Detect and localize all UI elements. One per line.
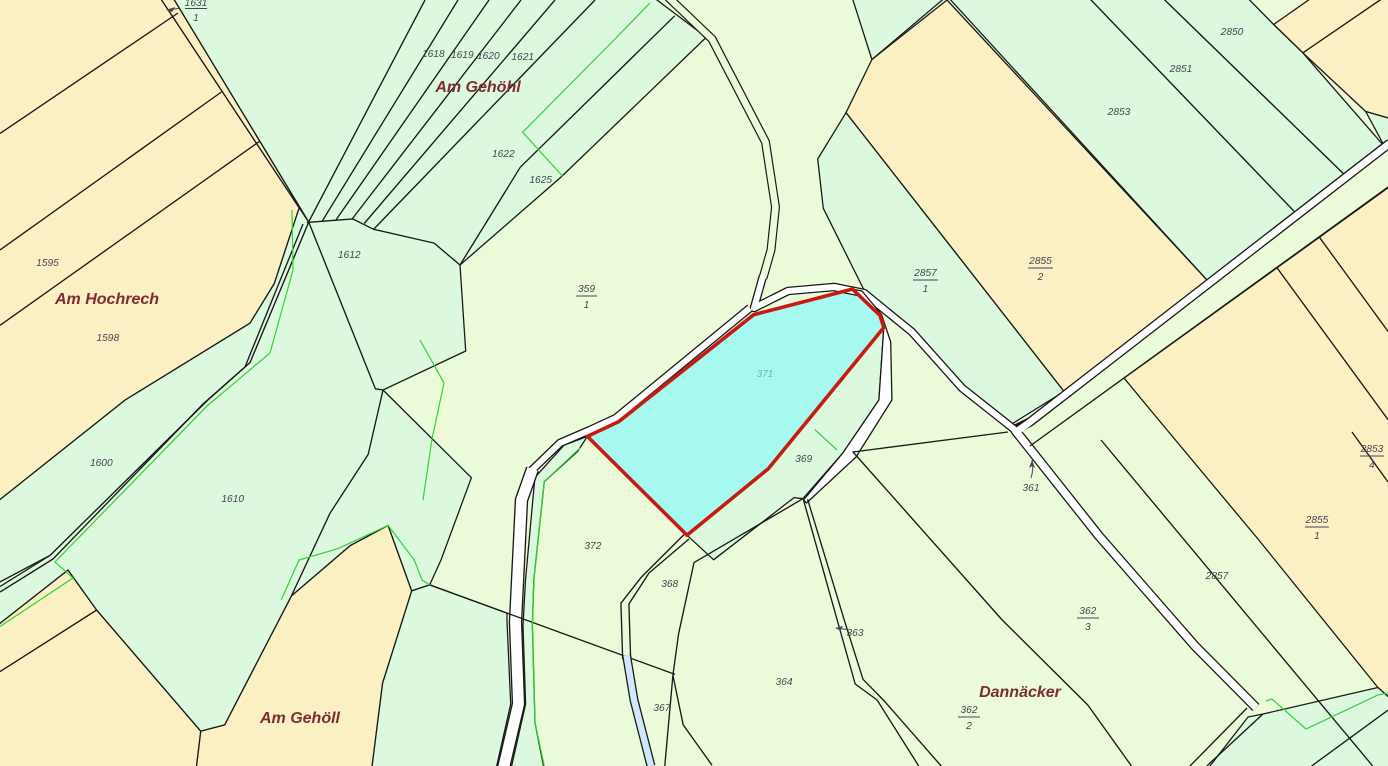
svg-text:363: 363 bbox=[847, 628, 864, 639]
svg-text:364: 364 bbox=[776, 677, 793, 688]
svg-text:369: 369 bbox=[795, 454, 812, 465]
svg-text:1: 1 bbox=[584, 300, 590, 311]
svg-text:1600: 1600 bbox=[90, 458, 113, 469]
svg-text:2855: 2855 bbox=[1028, 256, 1052, 267]
svg-text:1618: 1618 bbox=[422, 49, 445, 60]
svg-text:1: 1 bbox=[193, 13, 199, 24]
svg-text:362: 362 bbox=[961, 705, 978, 716]
svg-text:1620: 1620 bbox=[477, 51, 500, 62]
svg-text:2853: 2853 bbox=[1360, 444, 1384, 455]
svg-text:359: 359 bbox=[578, 284, 595, 295]
svg-text:Am Hochrech: Am Hochrech bbox=[54, 291, 159, 308]
svg-text:368: 368 bbox=[661, 579, 678, 590]
svg-text:2857: 2857 bbox=[913, 268, 937, 279]
svg-text:2855: 2855 bbox=[1305, 515, 1329, 526]
svg-text:371: 371 bbox=[757, 369, 774, 380]
svg-text:Am Gehöhl: Am Gehöhl bbox=[434, 79, 521, 96]
svg-text:1631: 1631 bbox=[185, 0, 208, 9]
svg-text:4: 4 bbox=[1369, 460, 1375, 471]
svg-text:1625: 1625 bbox=[529, 175, 552, 186]
svg-text:1610: 1610 bbox=[221, 494, 244, 505]
svg-text:1622: 1622 bbox=[492, 149, 515, 160]
svg-text:2850: 2850 bbox=[1220, 27, 1244, 38]
svg-text:2: 2 bbox=[1037, 272, 1044, 283]
svg-text:1612: 1612 bbox=[338, 250, 361, 261]
svg-text:361: 361 bbox=[1023, 483, 1040, 494]
svg-text:1598: 1598 bbox=[96, 333, 119, 344]
svg-text:3: 3 bbox=[1085, 622, 1091, 633]
svg-text:362: 362 bbox=[1079, 606, 1096, 617]
svg-text:2853: 2853 bbox=[1107, 107, 1131, 118]
svg-text:1595: 1595 bbox=[36, 258, 59, 269]
svg-text:Am Gehöll: Am Gehöll bbox=[259, 710, 341, 727]
svg-text:1621: 1621 bbox=[511, 52, 534, 63]
svg-text:2857: 2857 bbox=[1205, 571, 1229, 582]
svg-text:2851: 2851 bbox=[1169, 64, 1193, 75]
svg-text:2: 2 bbox=[965, 721, 972, 732]
svg-text:1: 1 bbox=[923, 284, 929, 295]
svg-text:372: 372 bbox=[584, 541, 601, 552]
svg-text:1619: 1619 bbox=[451, 50, 474, 61]
svg-text:367: 367 bbox=[653, 703, 670, 714]
svg-text:1: 1 bbox=[1314, 531, 1320, 542]
svg-text:Dannäcker: Dannäcker bbox=[979, 684, 1062, 701]
